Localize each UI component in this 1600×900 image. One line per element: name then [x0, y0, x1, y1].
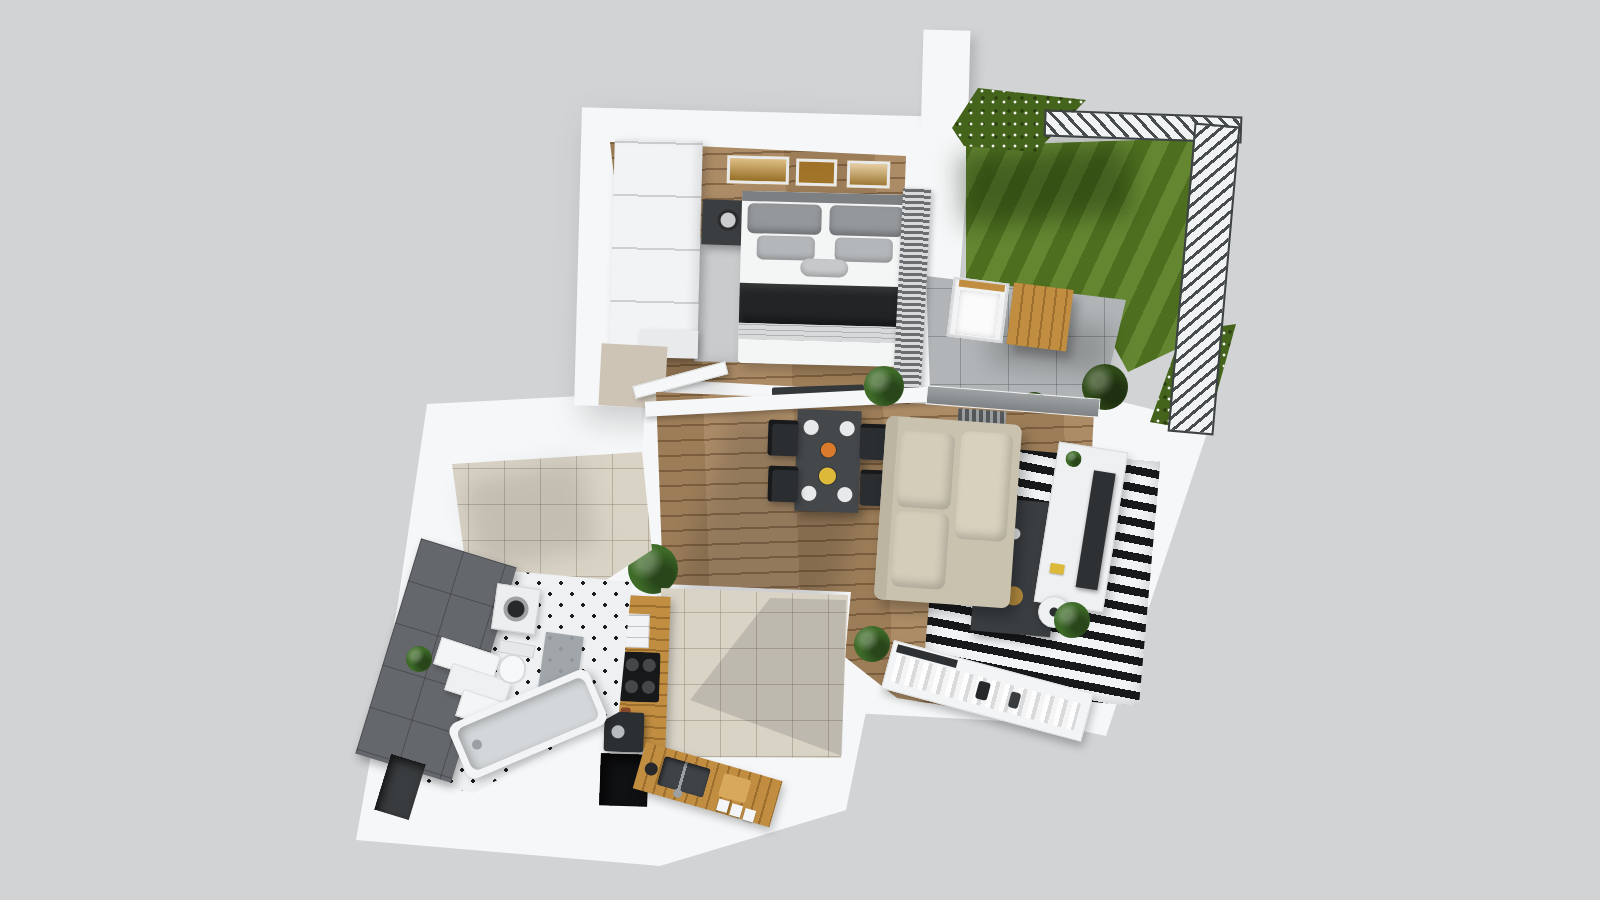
- sofa-cushion-2: [891, 510, 950, 590]
- double-bed: [738, 191, 910, 367]
- dining-chair-1: [767, 419, 798, 456]
- bed-pillow-small-right: [834, 237, 893, 263]
- bed-bolster: [800, 258, 848, 277]
- bedroom-picture-1: [727, 155, 790, 185]
- dining-chair-2: [767, 465, 798, 502]
- garden-shadow: [958, 144, 1132, 226]
- terrace-wood-table: [1006, 283, 1073, 352]
- bathroom-plant: [406, 646, 432, 672]
- bed-folded-blanket: [738, 323, 906, 343]
- induction-cooktop: [619, 651, 661, 702]
- kettle: [643, 761, 659, 777]
- bed-pillow-right: [829, 205, 904, 237]
- living-plant-by-rack-left: [854, 626, 890, 662]
- canister-2: [729, 803, 743, 818]
- kitchen-sink: [657, 756, 711, 798]
- floor-plan-scene: [0, 0, 1600, 900]
- sofa-cushion-1: [896, 431, 955, 511]
- bedroom-picture-3: [847, 160, 891, 188]
- sideboard-book: [1049, 563, 1064, 575]
- canister-1: [716, 798, 730, 813]
- bed-pillow-left: [747, 203, 822, 235]
- sofa-chaise-cushion: [954, 431, 1013, 542]
- bedroom-picture-2: [796, 158, 838, 186]
- bedroom-wardrobe: [609, 139, 703, 355]
- lounge-chair-cushion: [955, 290, 1000, 339]
- lounge-chair: [947, 277, 1010, 343]
- bed-throw-blanket: [739, 283, 908, 327]
- bed-pillow-small-left: [756, 235, 815, 261]
- sideboard-plant: [1064, 450, 1082, 468]
- washing-machine: [491, 583, 541, 635]
- sofa-l-shaped: [874, 415, 1023, 608]
- living-plant-by-rack-right: [1054, 602, 1090, 638]
- dining-table: [794, 409, 862, 513]
- coffee-machine: [603, 711, 644, 752]
- canister-3: [742, 808, 756, 823]
- living-plant-corner: [864, 366, 904, 406]
